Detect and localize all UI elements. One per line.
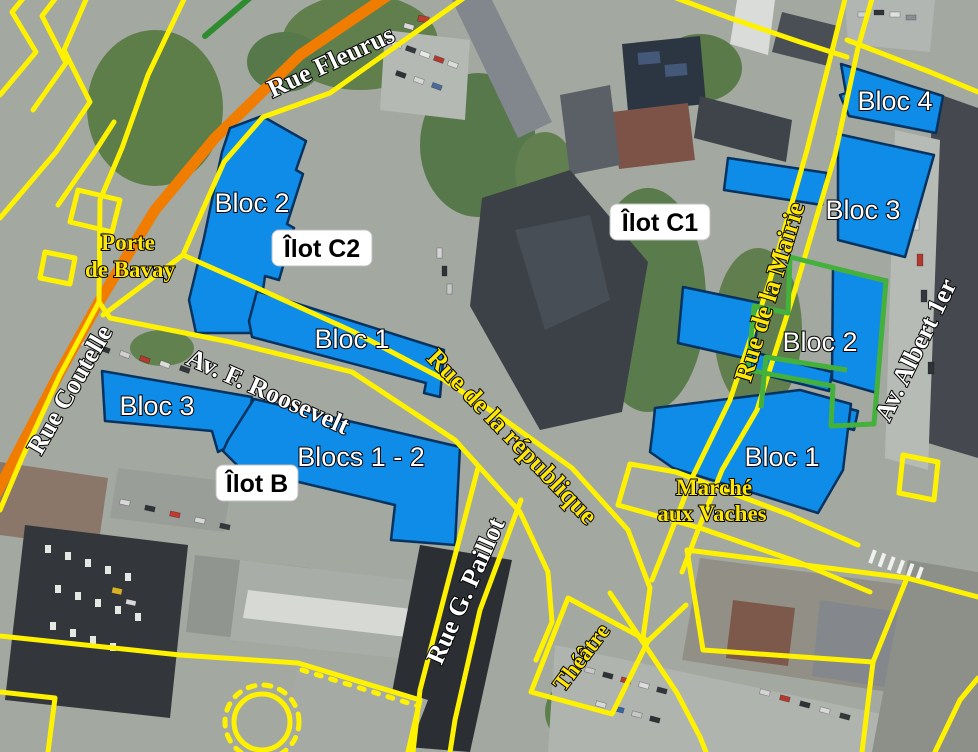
block-label-c1-bloc3: Bloc 3 bbox=[825, 195, 900, 225]
block-label-c2-bloc2: Bloc 2 bbox=[214, 188, 289, 218]
ilot-label-c1: Îlot C1 bbox=[620, 207, 698, 237]
block-label-b-blocs12: Blocs 1 - 2 bbox=[297, 442, 425, 472]
map-canvas: Rue Fleurus Rue Coutelle Av. F. Roosevel… bbox=[0, 0, 978, 752]
block-label-b-bloc3: Bloc 3 bbox=[119, 391, 194, 421]
place-label-porte-de-bavay-line2: de Bavay bbox=[85, 257, 176, 282]
ilot-label-b: Îlot B bbox=[224, 468, 289, 498]
place-label-marche-line1: Marché bbox=[676, 475, 752, 500]
annotated-aerial-map: Rue Fleurus Rue Coutelle Av. F. Roosevel… bbox=[0, 0, 978, 752]
place-label-marche-line2: aux Vaches bbox=[657, 501, 766, 526]
block-label-c1-bloc1: Bloc 1 bbox=[744, 442, 819, 472]
block-label-c1-bloc4: Bloc 4 bbox=[857, 86, 932, 116]
block-label-c2-bloc1: Bloc 1 bbox=[314, 324, 389, 354]
block-label-c1-bloc2: Bloc 2 bbox=[782, 327, 857, 357]
ilot-label-c2: Îlot C2 bbox=[282, 233, 360, 263]
place-label-porte-de-bavay-line1: Porte bbox=[101, 230, 155, 255]
